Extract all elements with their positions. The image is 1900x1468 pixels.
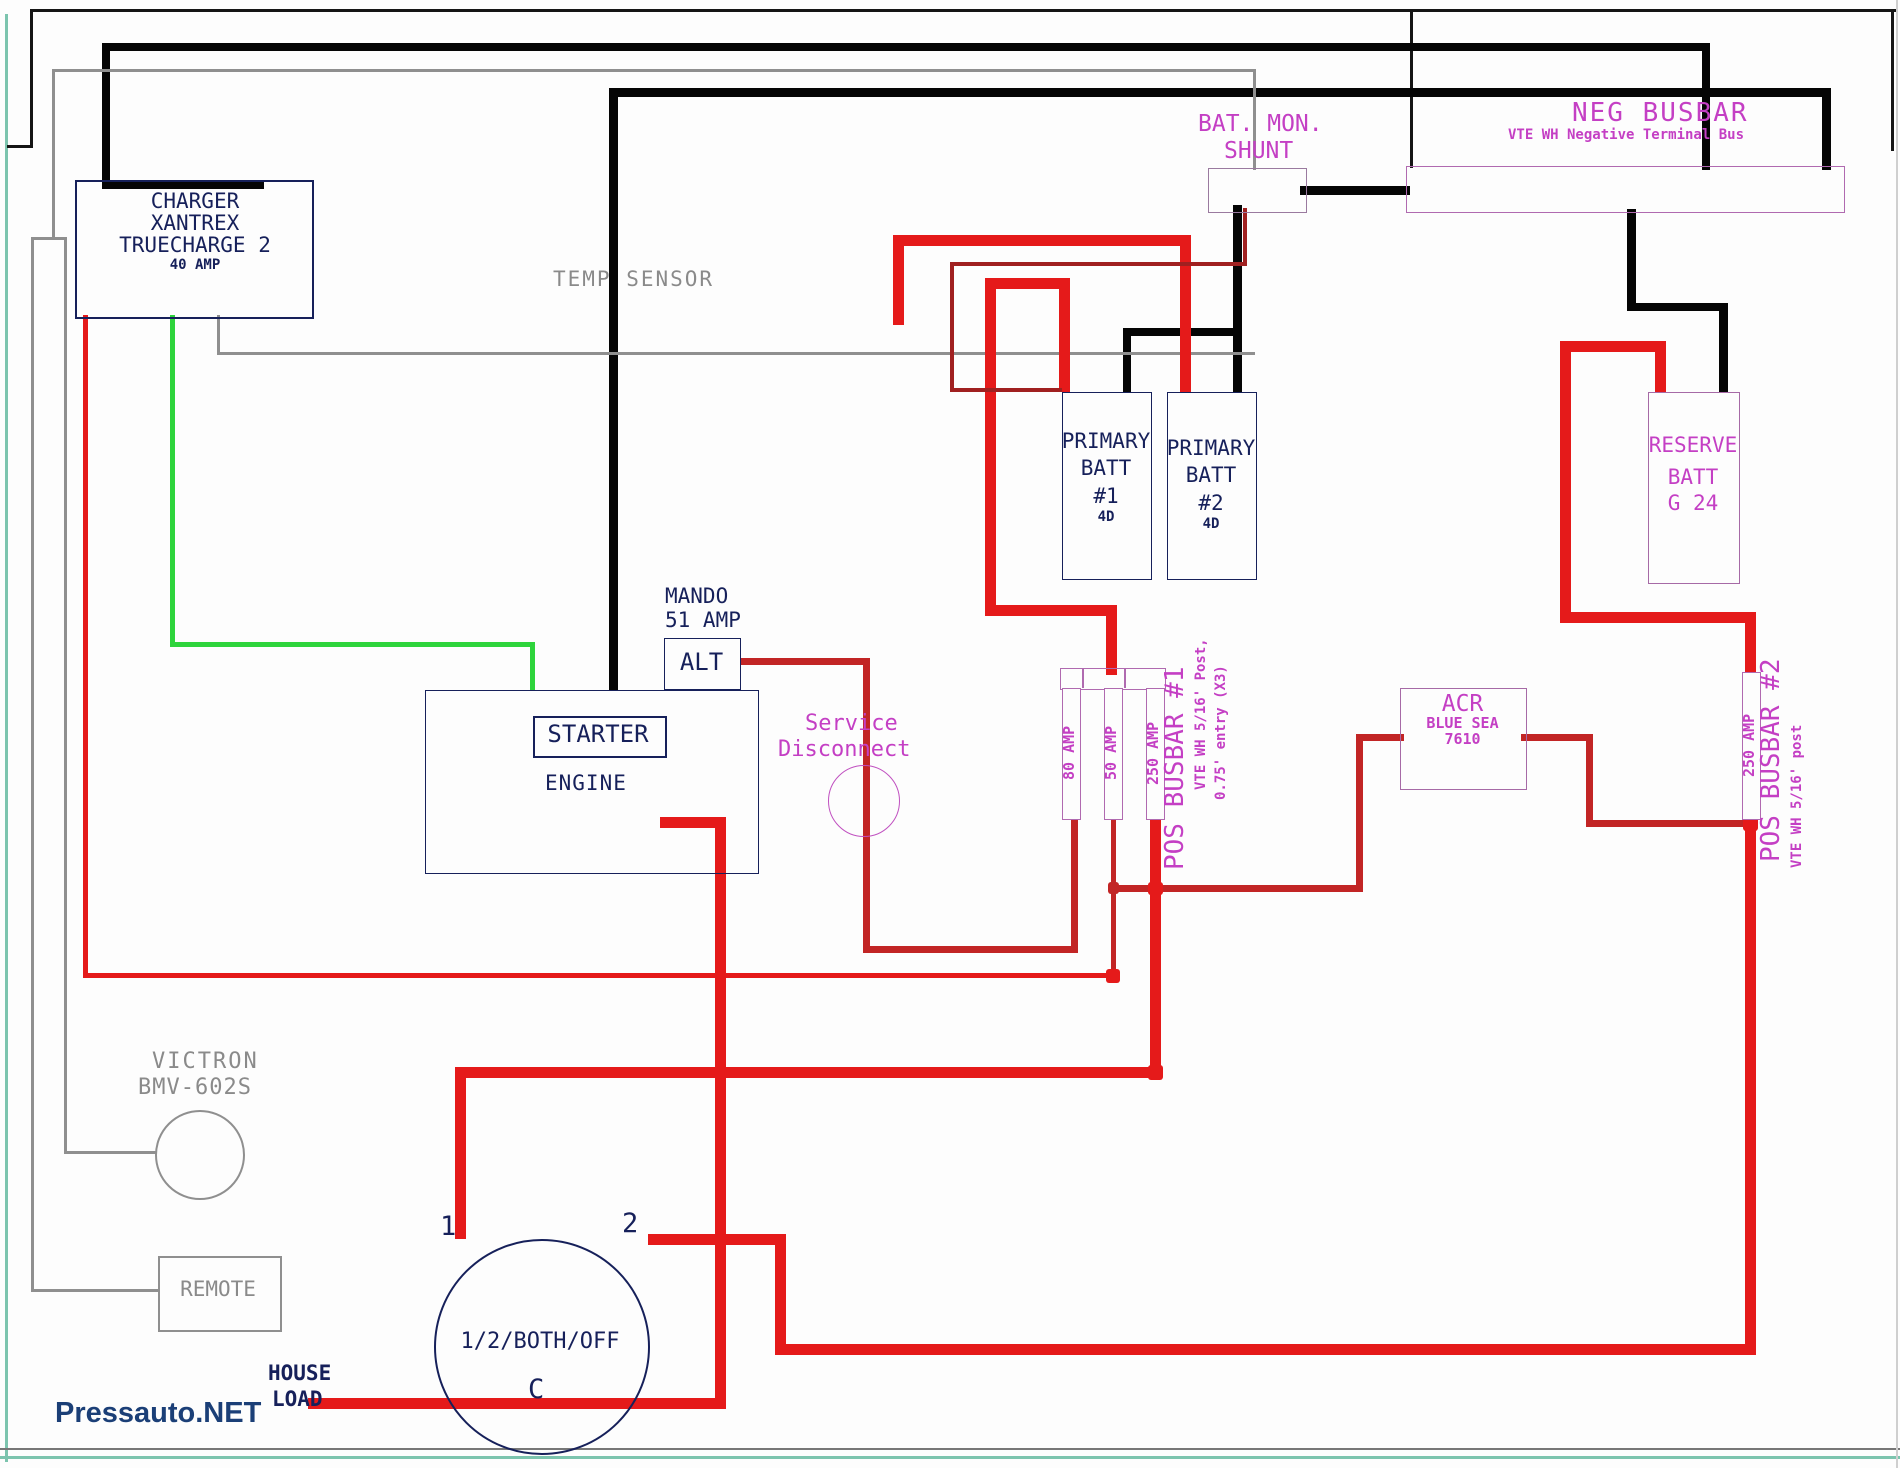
shunt-box xyxy=(1208,168,1307,213)
wire-neg-busbar-drop-right xyxy=(1822,88,1831,170)
reserve-l1: RESERVE xyxy=(1633,434,1753,456)
house-load-l1: HOUSE xyxy=(268,1362,331,1384)
pos-busbar1-title: POS BUSBAR #1 xyxy=(1162,620,1189,870)
wire-neg-thin-left-stub xyxy=(7,145,33,148)
wire-batt1-pos-vert xyxy=(985,278,996,616)
wire-gray-left-vert xyxy=(52,69,55,240)
batt2-l4: 4D xyxy=(1151,517,1271,532)
batt1-l2: BATT xyxy=(1046,457,1166,479)
wire-neg-thin-left xyxy=(30,9,33,148)
junction-acr-fuse50 xyxy=(1108,882,1119,894)
wire-reserve-neg-vert1 xyxy=(1627,209,1636,310)
remote-label: REMOTE xyxy=(158,1278,278,1300)
wire-neg-thin-right-stub xyxy=(1891,9,1894,151)
charger-line1: CHARGER xyxy=(90,190,300,212)
page-border-left xyxy=(5,14,8,1462)
wire-gray-victron-vert xyxy=(64,237,67,1154)
wire-batt1-pos-run xyxy=(985,605,1117,616)
wire-engine-ground-riser xyxy=(609,90,618,690)
switch-terminal-c: C xyxy=(528,1376,544,1404)
victron-l1: VICTRON xyxy=(152,1050,259,1073)
wiring-diagram-canvas: CHARGER XANTREX TRUECHARGE 2 40 AMP TEMP… xyxy=(0,0,1900,1468)
wire-green-horiz xyxy=(170,642,535,647)
wire-shunt-sense-vert1 xyxy=(1243,208,1247,265)
wire-shunt-to-busbar xyxy=(1300,186,1410,195)
wire-switch1-vert xyxy=(455,1067,466,1239)
batt1-l1: PRIMARY xyxy=(1046,430,1166,452)
pos-busbar2-sub1: VTE WH 5/16' post xyxy=(1790,618,1805,868)
shunt-title1: BAT. MON. xyxy=(1198,112,1323,136)
charger-line4: 40 AMP xyxy=(90,258,300,273)
alt-label: ALT xyxy=(664,650,739,675)
acr-l1: ACR xyxy=(1400,692,1525,716)
wire-gray-top-run xyxy=(52,69,1256,72)
wire-acr-left-vert xyxy=(1356,737,1363,892)
wire-switch2-stub xyxy=(648,1234,786,1245)
wire-charger-pos-vert xyxy=(83,315,88,978)
wire-busbar1-feed xyxy=(1106,605,1117,675)
page-border-bottom xyxy=(0,1456,1900,1459)
charger-line3: TRUECHARGE 2 xyxy=(90,234,300,256)
neg-busbar-box xyxy=(1406,166,1845,213)
junction-charger-fuse50 xyxy=(1106,969,1120,983)
wire-green-engine-drop xyxy=(530,642,535,690)
neg-busbar-subtitle: VTE WH Negative Terminal Bus xyxy=(1508,128,1744,143)
house-load-l2: LOAD xyxy=(272,1388,323,1410)
page-border-bottom-rule xyxy=(0,1448,1900,1450)
wire-shunt-sense-link xyxy=(950,388,1062,392)
wire-gray-remote-vert xyxy=(31,237,34,1292)
reserve-l3: G 24 xyxy=(1633,492,1753,514)
alternator-l2: 51 AMP xyxy=(665,609,741,631)
pos-busbar2-title: POS BUSBAR #2 xyxy=(1758,612,1785,862)
wire-temp-sensor-drop xyxy=(217,315,220,355)
wire-batt1-pos-post xyxy=(1059,278,1070,392)
alternator-l1: MANDO xyxy=(665,585,728,607)
temp-sensor-label: TEMP SENSOR xyxy=(553,268,714,290)
battery-switch-label: 1/2/BOTH/OFF xyxy=(440,1330,640,1353)
wire-batt1-pos-top xyxy=(985,278,1070,289)
wire-reserve-neg-horiz xyxy=(1627,303,1728,311)
junction-acr-fuse250 xyxy=(1148,882,1163,895)
switch-terminal-2: 2 xyxy=(622,1210,638,1238)
wire-reserve-pos-top xyxy=(1560,341,1666,352)
switch-terminal-1: 1 xyxy=(440,1213,456,1241)
batt2-l1: PRIMARY xyxy=(1151,437,1271,459)
batt2-l3: #2 xyxy=(1151,492,1271,514)
pos-busbar1-divider1 xyxy=(1082,668,1084,688)
wire-reserve-neg-vert2 xyxy=(1719,303,1728,393)
wire-charger-neg-vert xyxy=(102,43,110,189)
fuse-50-label: 50 AMP xyxy=(1104,692,1121,814)
starter-label: STARTER xyxy=(533,722,663,747)
wire-charger-pos-run xyxy=(83,973,1116,978)
batt2-l2: BATT xyxy=(1151,464,1271,486)
wire-acr-right-link xyxy=(1521,734,1593,741)
junction-switch1-fuse250 xyxy=(1148,1065,1163,1080)
pos-busbar1-divider2 xyxy=(1124,668,1126,688)
shunt-title2: SHUNT xyxy=(1224,139,1293,163)
service-disconnect-l1: Service xyxy=(805,712,898,735)
wire-switch2-vert xyxy=(775,1237,786,1355)
acr-l3: 7610 xyxy=(1400,732,1525,748)
wire-fuse80-drop xyxy=(1071,818,1078,951)
wire-batt1-neg-drop xyxy=(1123,328,1131,393)
wire-acr-right-run xyxy=(1586,820,1754,827)
wire-house-feed-run xyxy=(775,1344,1756,1355)
reserve-l2: BATT xyxy=(1633,466,1753,488)
wire-gray-left-jog xyxy=(31,237,67,240)
neg-busbar-title: NEG BUSBAR xyxy=(1572,100,1749,127)
wire-neg-thin-top xyxy=(30,9,1896,12)
wire-temp-sensor-run xyxy=(217,352,1255,355)
victron-circle xyxy=(155,1110,245,1200)
batt1-l4: 4D xyxy=(1046,510,1166,525)
wire-fuse2-feed xyxy=(1745,612,1756,675)
pos-busbar1-strip xyxy=(1060,668,1166,690)
wire-batt2-pos-stub xyxy=(893,235,904,325)
wire-reserve-pos-run xyxy=(1560,612,1756,623)
wire-acr-right-vert xyxy=(1586,734,1593,827)
wire-reserve-pos-post xyxy=(1655,341,1666,393)
victron-l2: BMV-602S xyxy=(138,1076,252,1099)
wire-shunt-batt-drop xyxy=(1233,205,1242,393)
page-border-right xyxy=(1896,0,1898,1468)
batt1-l3: #1 xyxy=(1046,485,1166,507)
wire-alt-out xyxy=(740,658,870,665)
wire-gray-remote-link xyxy=(31,1289,159,1292)
wire-starter-vert xyxy=(715,817,726,1409)
engine-label: ENGINE xyxy=(545,772,627,794)
pos-busbar1-sub2: 0.75' entry (X3) xyxy=(1214,615,1229,800)
service-disconnect-circle xyxy=(828,765,900,837)
wire-green-vert xyxy=(170,315,175,647)
wire-acr-left-link xyxy=(1356,734,1404,741)
wire-fuse50-drop xyxy=(1111,818,1116,978)
charger-line2: XANTREX xyxy=(90,212,300,234)
wire-gray-victron-link xyxy=(64,1151,156,1154)
wire-switch1-run xyxy=(455,1067,1161,1078)
wire-engine-ground-run xyxy=(609,88,1831,97)
watermark: Pressauto.NET xyxy=(55,1398,261,1428)
wire-alt-run xyxy=(863,946,1078,953)
wire-reserve-pos-vert xyxy=(1560,341,1571,623)
pos-busbar1-sub1: VTE WH 5/16' Post, xyxy=(1194,605,1209,790)
service-disconnect-l2: Disconnect xyxy=(778,738,910,761)
wire-shunt-sense-run xyxy=(950,262,1247,266)
wire-neg-top-run xyxy=(102,43,1710,51)
wire-shunt-sense-vert2 xyxy=(950,262,954,390)
fuse-80-label: 80 AMP xyxy=(1062,692,1079,814)
wire-batt2-pos-top xyxy=(893,235,1191,246)
wire-batt2-pos-post xyxy=(1180,235,1191,392)
wire-house-feed-vert xyxy=(1745,815,1756,1355)
